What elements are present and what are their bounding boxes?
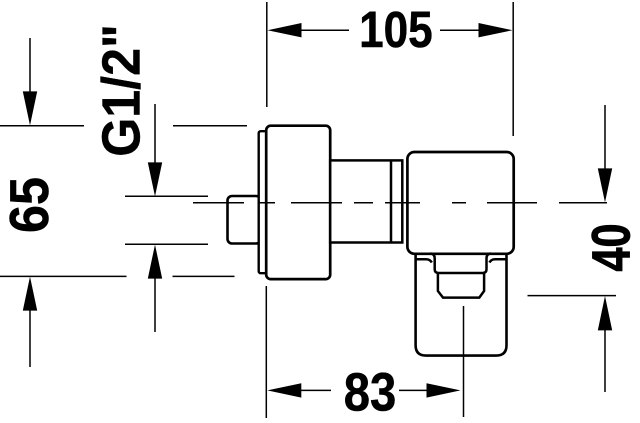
svg-text:83: 83 xyxy=(344,362,397,423)
svg-text:105: 105 xyxy=(359,2,433,59)
svg-text:G1/2": G1/2" xyxy=(92,24,152,157)
svg-text:65: 65 xyxy=(0,177,61,233)
svg-text:40: 40 xyxy=(582,223,640,271)
